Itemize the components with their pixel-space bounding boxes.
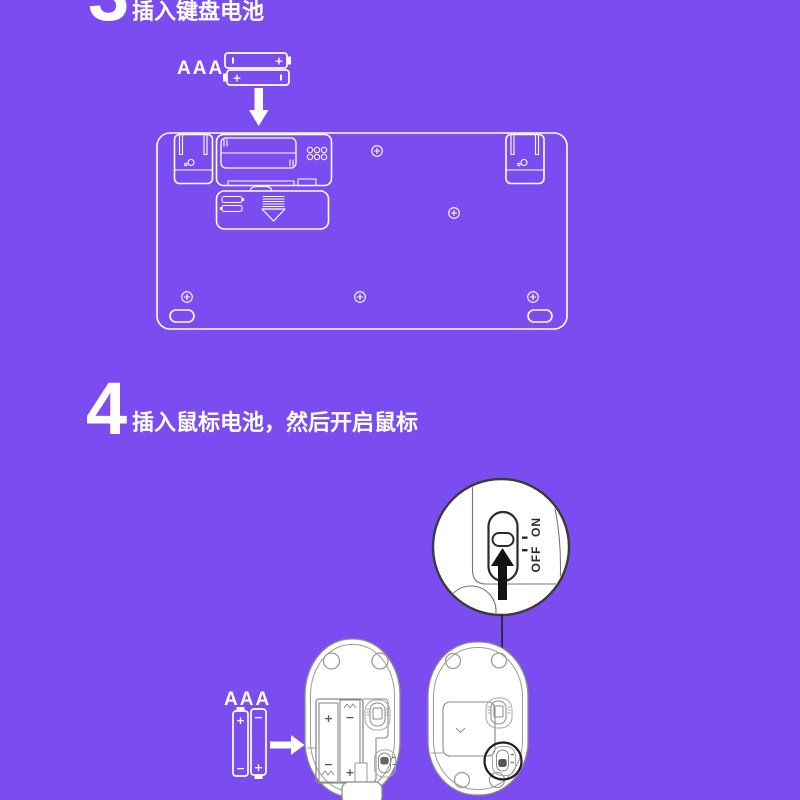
right-arrow-icon [270, 735, 305, 755]
keyboard-battery-bay [217, 135, 332, 186]
bay-plus-mark: + [345, 766, 354, 779]
screw-icon [449, 208, 460, 219]
off-position-mark [522, 549, 528, 551]
foot-lock-icon [188, 160, 194, 166]
foot-lock-icon [185, 163, 188, 166]
speaker-holes-icon [307, 147, 326, 159]
keyboard-bottom-illustration [157, 133, 567, 329]
aaa-marking-icon [220, 197, 244, 212]
foot-lock-icon [521, 160, 527, 166]
illustrations: + + [0, 0, 800, 800]
power-switch-knob [493, 533, 514, 546]
screw-icon [528, 292, 539, 303]
keyboard-foot-left [175, 135, 213, 184]
rubber-foot [528, 310, 552, 322]
on-position-mark [522, 537, 528, 539]
mouse-closed-illustration [428, 615, 528, 795]
switch-knob [380, 757, 388, 765]
switch-off-label: OFF [529, 546, 543, 573]
down-arrow-icon [249, 88, 269, 126]
mouse-battery-cover [342, 782, 382, 800]
bay-plus-mark: + [324, 712, 333, 725]
battery-minus-mark: − [254, 711, 263, 724]
bay-minus-mark: − [324, 758, 333, 771]
screw-icon [182, 292, 193, 303]
mouse-open-illustration: + − − + [305, 639, 400, 800]
battery-plus-mark: + [232, 72, 241, 85]
setup-guide-page: { "steps": { "step3": { "number": "3", "… [0, 0, 800, 800]
battery-plus-mark: + [236, 714, 245, 727]
keyboard-foot-right [506, 135, 544, 184]
switch-on-label: ON [529, 517, 543, 537]
door-grip-arrow-icon [262, 197, 285, 222]
keyboard-battery-door [217, 187, 329, 230]
power-switch-callout: ON OFF [433, 478, 569, 636]
screw-icon [372, 146, 383, 157]
keyboard-batteries-illustration: + + [223, 53, 291, 126]
cover-latch [355, 763, 367, 782]
screw-icon [355, 292, 366, 303]
mouse-batteries-illustration: + − − + [233, 707, 305, 779]
battery-minus-mark: − [236, 762, 245, 775]
bay-minus-mark: − [345, 711, 354, 724]
battery-plus-mark: + [254, 761, 263, 774]
foot-lock-icon [518, 163, 521, 166]
switch-knob [498, 759, 506, 767]
rubber-foot [170, 310, 194, 322]
battery-plus-mark: + [274, 55, 283, 68]
